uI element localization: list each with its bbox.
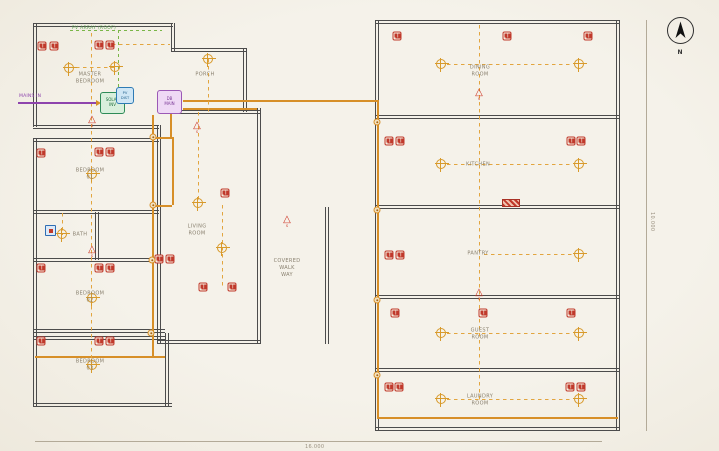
- circuit-dashed-line: [112, 44, 170, 45]
- feeder-line: [377, 417, 618, 419]
- room-label: GUEST ROOM: [471, 327, 490, 341]
- ceiling-light-symbol: [57, 229, 67, 239]
- power-outlet-symbol: [199, 283, 208, 292]
- power-outlet-symbol: [95, 148, 104, 157]
- switch-label: S: [91, 124, 93, 128]
- power-outlet-symbol: [577, 137, 586, 146]
- wall-segment: [33, 23, 37, 127]
- ceiling-light-symbol: [436, 394, 446, 404]
- ceiling-light-symbol: [574, 59, 584, 69]
- wall-segment: [33, 125, 159, 129]
- junction-box-symbol: [150, 134, 157, 141]
- wall-segment: [375, 115, 620, 119]
- switch-triangle-icon: △: [88, 246, 96, 254]
- power-outlet-symbol: [584, 32, 593, 41]
- wall-segment: [157, 340, 261, 344]
- switch-label: S: [478, 297, 480, 301]
- switch-label: S: [478, 97, 480, 101]
- room-label: BATH: [73, 232, 88, 239]
- switch-triangle-icon: △: [475, 89, 483, 97]
- solar-inverter-label-2: INV: [109, 103, 116, 108]
- ceiling-light-symbol: [203, 54, 213, 64]
- power-outlet-symbol: [396, 137, 405, 146]
- ceiling-light-symbol: [436, 59, 446, 69]
- power-outlet-symbol: [106, 148, 115, 157]
- power-outlet-symbol: [391, 309, 400, 318]
- power-outlet-symbol: [106, 41, 115, 50]
- mains-label: MAINS IN: [19, 94, 41, 99]
- switch-symbol: △S: [283, 216, 291, 228]
- wall-segment: [243, 48, 247, 112]
- power-outlet-symbol: [479, 309, 488, 318]
- circuit-dashed-line: [484, 254, 573, 255]
- wall-segment: [375, 295, 620, 299]
- wall-segment: [375, 427, 620, 431]
- power-outlet-symbol: [395, 383, 404, 392]
- power-outlet-symbol: [95, 41, 104, 50]
- ceiling-light-symbol: [217, 243, 227, 253]
- wall-segment: [165, 333, 169, 407]
- db-main-label-2: MAIN: [164, 102, 174, 107]
- power-outlet-symbol: [228, 283, 237, 292]
- junction-box-symbol: [374, 207, 381, 214]
- junction-box-symbol: [374, 372, 381, 379]
- junction-box-symbol: [149, 257, 156, 264]
- wall-segment: [33, 138, 159, 142]
- wall-segment: [33, 210, 37, 262]
- pv-array-label: PV ARRAY (ROOF): [72, 26, 116, 31]
- switch-symbol: △S: [193, 122, 201, 134]
- power-outlet-symbol: [567, 309, 576, 318]
- power-outlet-symbol: [37, 337, 46, 346]
- room-label: BEDROOM 03: [76, 358, 105, 372]
- wall-segment: [157, 125, 161, 344]
- circuit-dashed-line: [447, 64, 573, 65]
- switch-label: S: [286, 224, 288, 228]
- ceiling-light-symbol: [436, 159, 446, 169]
- wall-segment: [325, 207, 329, 344]
- pv-string-line: [118, 30, 119, 88]
- power-outlet-symbol: [155, 255, 164, 264]
- pv-dist-box: PV DIST: [116, 87, 134, 104]
- power-outlet-symbol: [393, 32, 402, 41]
- power-outlet-symbol: [95, 264, 104, 273]
- power-outlet-symbol: [221, 189, 230, 198]
- ceiling-light-symbol: [64, 63, 74, 73]
- feeder-line: [183, 100, 377, 102]
- circuit-dashed-line: [208, 59, 209, 112]
- db-main-box: DB MAIN: [157, 90, 182, 114]
- switch-triangle-icon: △: [88, 116, 96, 124]
- power-outlet-symbol: [37, 264, 46, 273]
- switch-symbol: △S: [88, 246, 96, 258]
- switch-symbol: △S: [88, 116, 96, 128]
- bottom-dimension-line: [35, 441, 602, 442]
- wall-segment: [375, 20, 620, 24]
- power-outlet-symbol: [106, 337, 115, 346]
- ceiling-light-symbol: [574, 249, 584, 259]
- feeder-line: [152, 115, 154, 357]
- junction-box-symbol: [374, 297, 381, 304]
- right-dimension-line: [646, 20, 647, 431]
- switch-triangle-icon: △: [193, 122, 201, 130]
- wall-segment: [171, 23, 175, 52]
- feeder-line: [377, 100, 379, 418]
- ceiling-light-symbol: [574, 328, 584, 338]
- junction-box-symbol: [148, 330, 155, 337]
- room-label: PANTRY: [467, 251, 488, 258]
- ceiling-light-symbol: [574, 159, 584, 169]
- power-outlet-symbol: [567, 137, 576, 146]
- power-outlet-symbol: [95, 337, 104, 346]
- wall-segment: [33, 403, 172, 407]
- cooker-unit-symbol: [502, 199, 520, 207]
- ceiling-light-symbol: [193, 198, 203, 208]
- switch-triangle-icon: △: [475, 289, 483, 297]
- room-label: MASTER BEDROOM: [76, 71, 105, 85]
- right-dimension-text: 10.000: [649, 212, 655, 231]
- wall-segment: [616, 20, 620, 431]
- switch-symbol: △S: [475, 89, 483, 101]
- power-outlet-symbol: [566, 383, 575, 392]
- wall-segment: [171, 48, 247, 52]
- feeder-line: [183, 108, 257, 110]
- room-label: LIVING ROOM: [188, 223, 207, 237]
- pv-dist-label-2: DIST: [121, 96, 129, 100]
- switch-label: S: [196, 130, 198, 134]
- feeder-line: [172, 137, 174, 205]
- room-label: LAUNDRY ROOM: [467, 393, 493, 407]
- ceiling-light-symbol: [436, 328, 446, 338]
- room-label: KITCHEN: [466, 162, 490, 169]
- power-outlet-symbol: [385, 383, 394, 392]
- circuit-dashed-line: [479, 25, 480, 400]
- room-label: PORCH: [195, 72, 214, 79]
- switch-symbol: △S: [475, 289, 483, 301]
- room-label: BEDROOM 01: [76, 167, 105, 181]
- power-outlet-symbol: [396, 251, 405, 260]
- power-outlet-symbol: [37, 149, 46, 158]
- north-arrow-icon: [667, 17, 694, 44]
- junction-box-symbol: [150, 202, 157, 209]
- circuit-dashed-line: [447, 333, 573, 334]
- ceiling-light-symbol: [110, 62, 120, 72]
- bottom-dimension-text: 16.000: [305, 444, 324, 450]
- room-label: BEDROOM 02: [76, 290, 105, 304]
- ceiling-light-symbol: [574, 394, 584, 404]
- north-label: N: [677, 49, 682, 56]
- power-outlet-symbol: [38, 42, 47, 51]
- power-outlet-symbol: [385, 137, 394, 146]
- mains-feed-line: [18, 102, 97, 104]
- power-outlet-symbol: [385, 251, 394, 260]
- floor-plan-canvas: PV ARRAY (ROOF) MAINS IN SOLAR INV PV DI…: [0, 0, 719, 451]
- wall-segment: [375, 205, 620, 209]
- wall-segment: [375, 368, 620, 372]
- power-outlet-symbol: [166, 255, 175, 264]
- power-outlet-symbol: [577, 383, 586, 392]
- room-label: DINING ROOM: [470, 64, 490, 78]
- switch-triangle-icon: △: [283, 216, 291, 224]
- junction-box-symbol: [374, 119, 381, 126]
- wall-segment: [33, 329, 165, 333]
- wall-segment: [257, 108, 261, 344]
- feeder-line: [170, 112, 172, 138]
- room-label: COVERED WALK WAY: [274, 258, 301, 278]
- power-outlet-symbol: [50, 42, 59, 51]
- switch-label: S: [91, 254, 93, 258]
- water-heater-symbol: [45, 225, 56, 236]
- power-outlet-symbol: [106, 264, 115, 273]
- power-outlet-symbol: [503, 32, 512, 41]
